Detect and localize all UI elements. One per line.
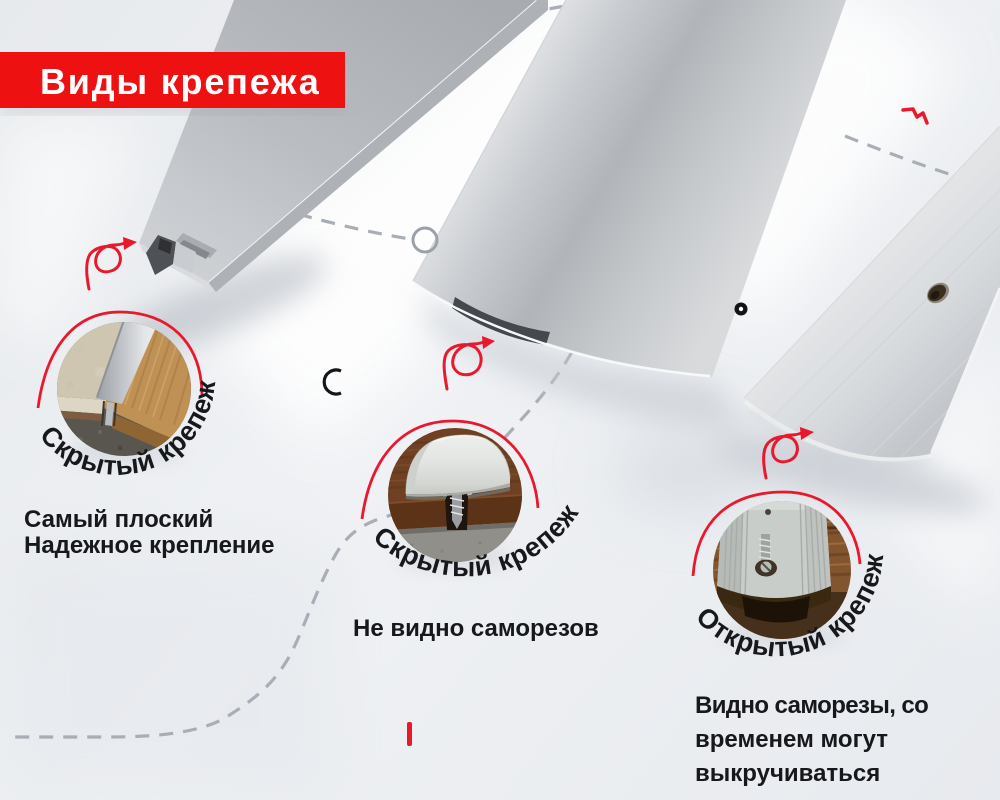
svg-text:Видно саморезы, со: Видно саморезы, со [695,692,928,719]
svg-text:Самый плоский: Самый плоский [24,506,213,533]
svg-text:Надежное крепление: Надежное крепление [24,532,275,559]
svg-text:Виды крепежа: Виды крепежа [40,61,321,102]
svg-text:Не видно саморезов: Не видно саморезов [353,615,599,642]
svg-text:выкручиваться: выкручиваться [695,760,880,787]
svg-text:временем могут: временем могут [695,726,888,753]
